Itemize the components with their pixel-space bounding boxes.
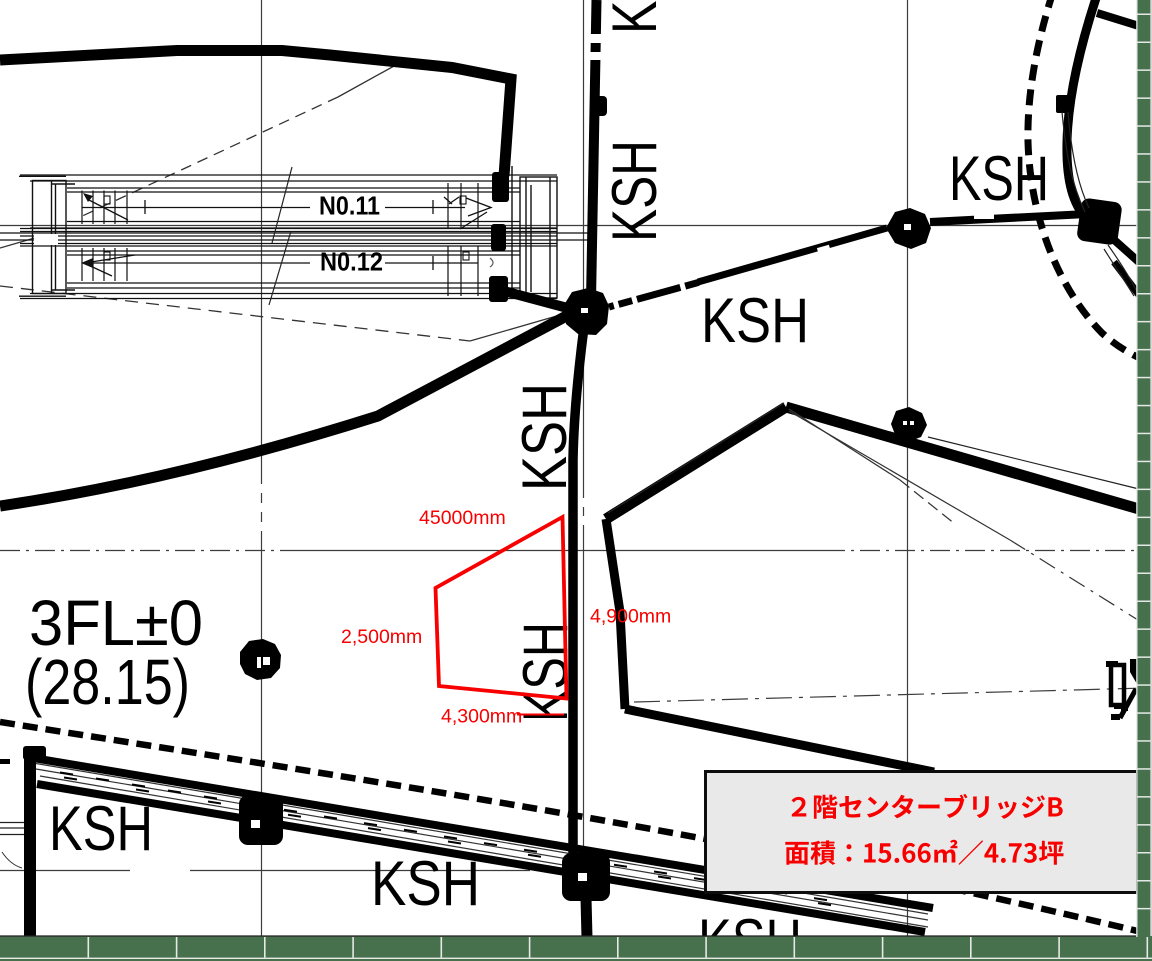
svg-text:KSH: KSH	[949, 144, 1049, 214]
svg-text:KSH: KSH	[701, 286, 809, 356]
svg-text:4,300mm: 4,300mm	[441, 706, 522, 728]
svg-text:KSH: KSH	[371, 849, 480, 919]
svg-text:KSH: KSH	[600, 0, 670, 34]
svg-text:KSH: KSH	[510, 383, 580, 491]
svg-text:N0.12: N0.12	[320, 247, 383, 277]
svg-text:45000mm: 45000mm	[419, 507, 506, 529]
svg-text:(28.15): (28.15)	[25, 646, 190, 718]
svg-text:4,900mm: 4,900mm	[590, 606, 671, 628]
svg-text:KSH: KSH	[49, 794, 153, 864]
svg-text:KSH: KSH	[600, 140, 670, 242]
svg-text:N0.11: N0.11	[319, 191, 380, 221]
svg-text:2,500mm: 2,500mm	[341, 626, 422, 648]
